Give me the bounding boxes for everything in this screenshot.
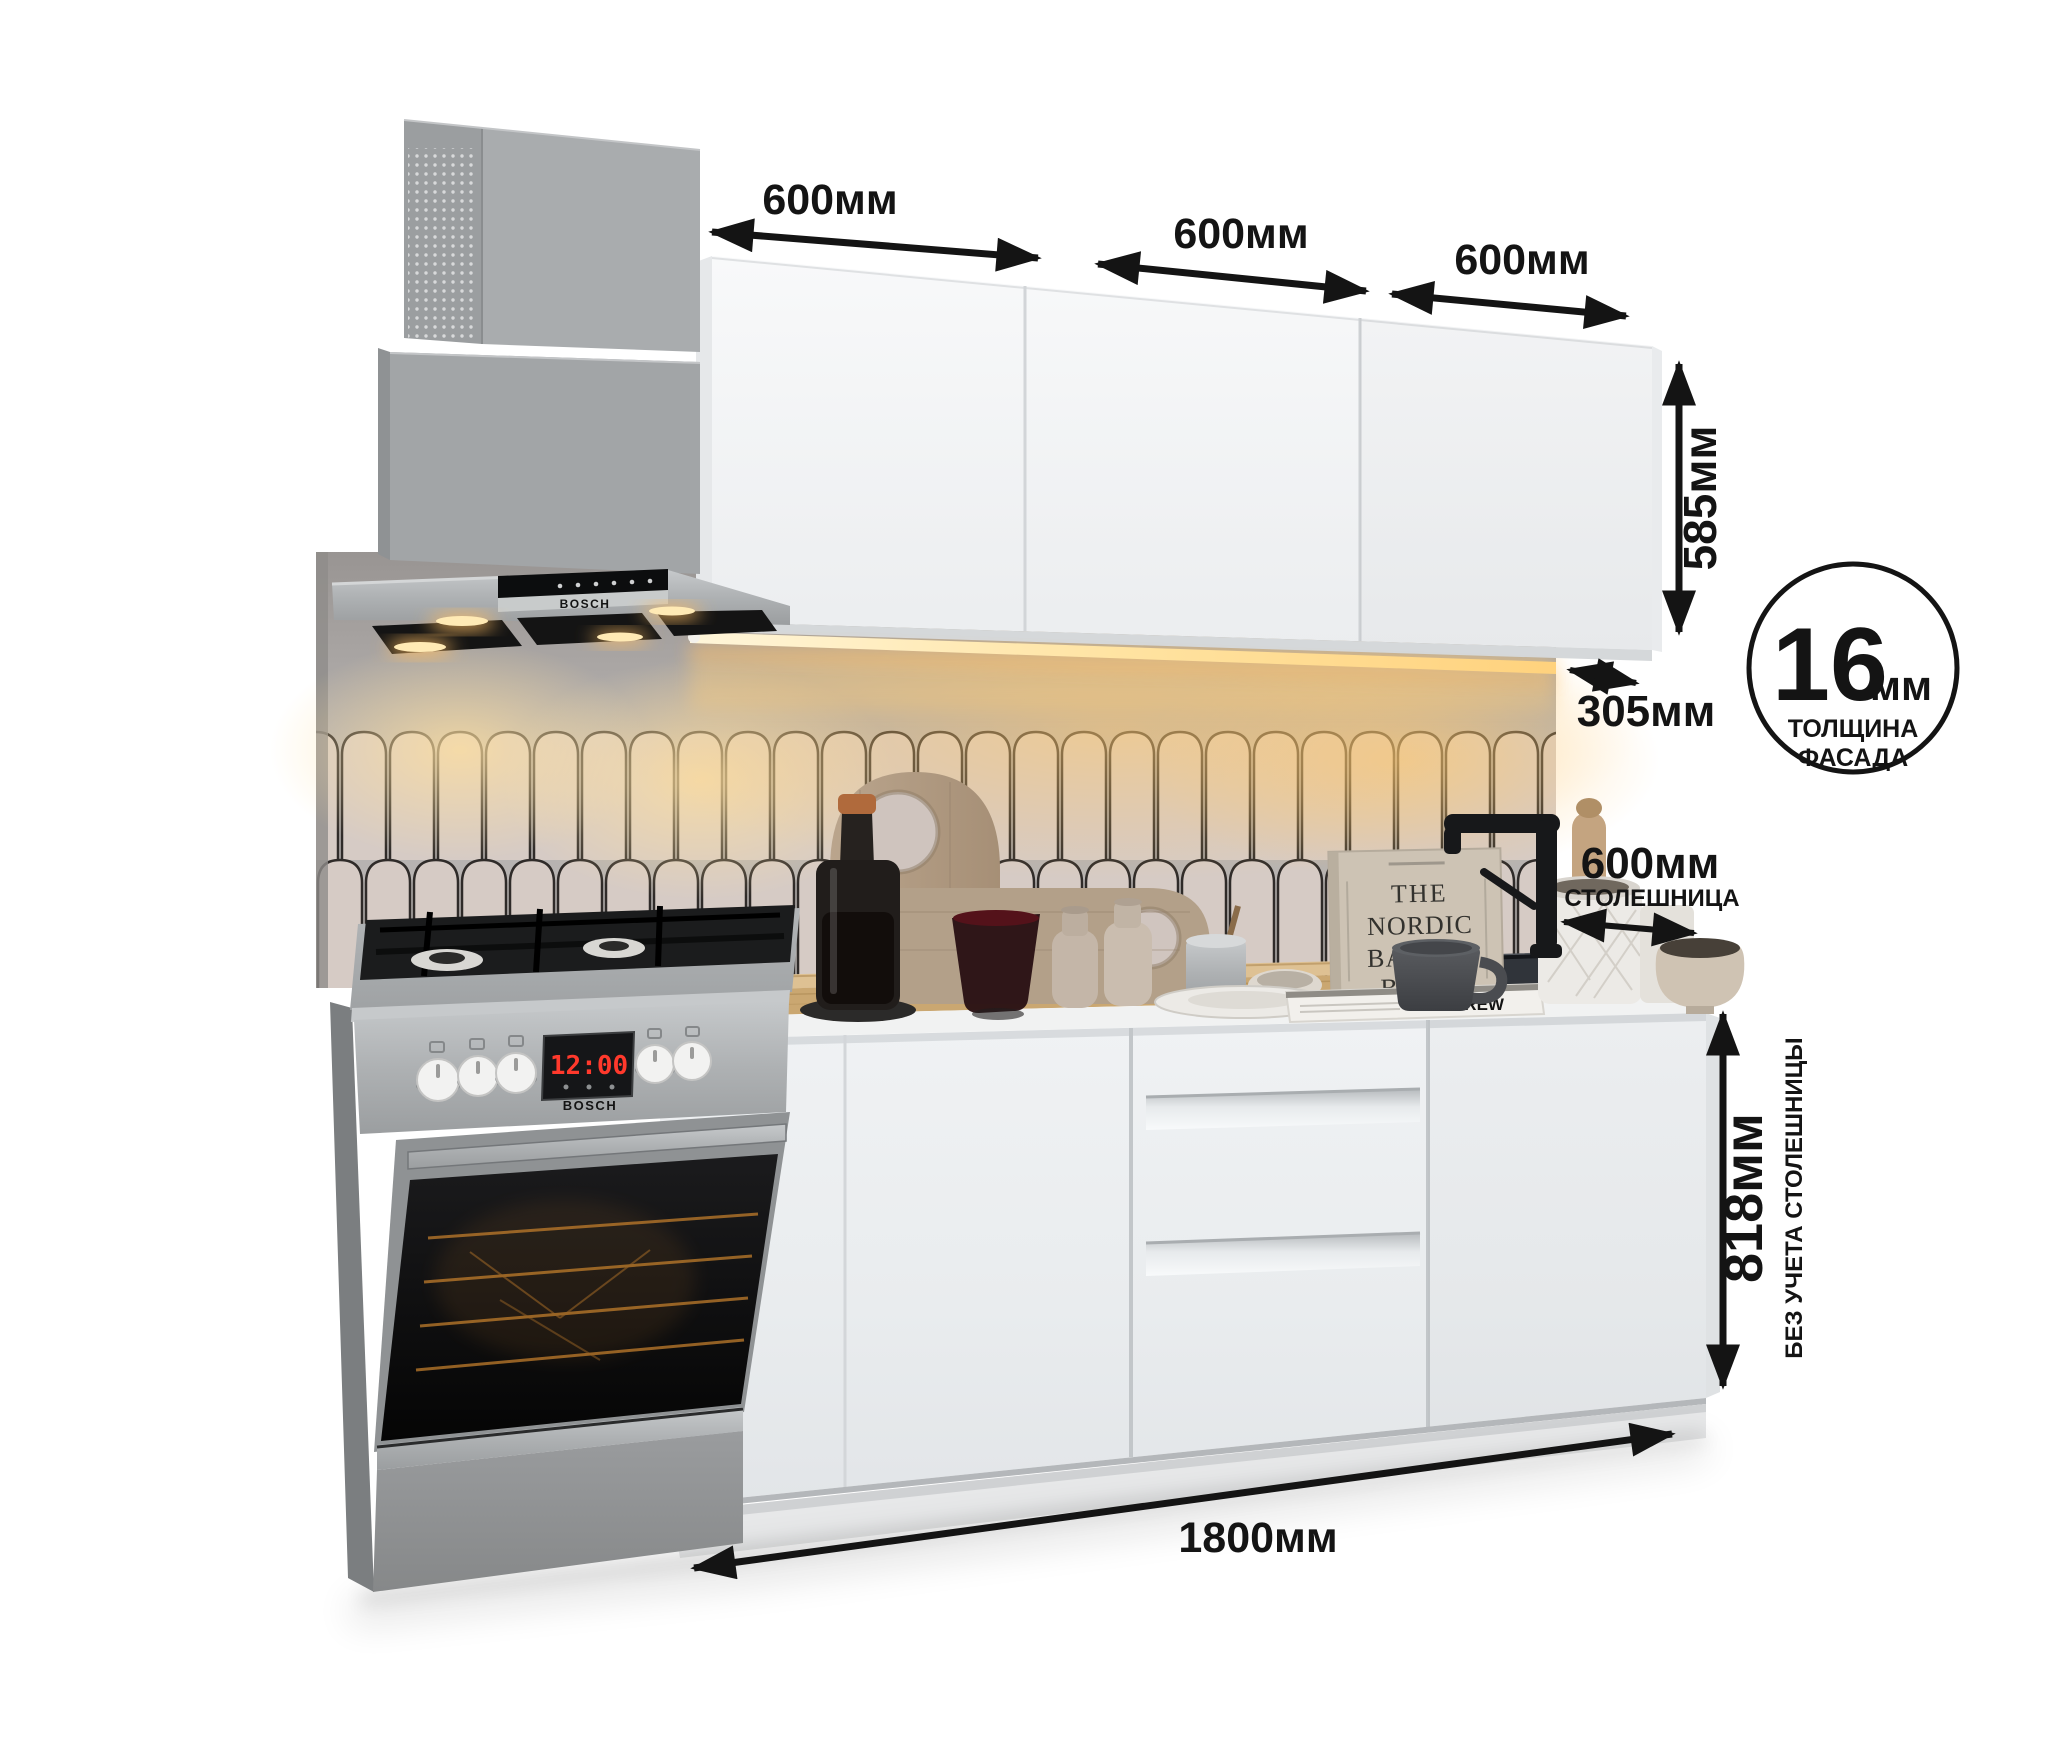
facade-thickness-badge: 16 мм ТОЛЩИНА ФАСАДА (1749, 564, 1957, 772)
stove-knob (635, 1045, 675, 1083)
dim-top-width-2: 600мм (1098, 210, 1366, 291)
dim-base-height-818: 818мм БЕЗ УЧЕТА СТОЛЕШНИЦЫ (1714, 1014, 1808, 1386)
badge-unit: мм (1870, 662, 1932, 709)
dim-label-1800: 1800мм (1178, 1514, 1337, 1562)
stove: 12:00 BOSCH (330, 905, 800, 1592)
dim-label-600-1: 600мм (762, 176, 897, 224)
bottle-copper-cap (838, 794, 876, 814)
stove-knob (673, 1042, 711, 1080)
faucet-base (1530, 944, 1562, 958)
dim-cabinet-height-585: 585мм (1674, 364, 1726, 632)
stove-clock: 12:00 (550, 1051, 628, 1081)
dim-label-600-2: 600мм (1173, 210, 1308, 258)
dim-label-585: 585мм (1674, 426, 1726, 571)
stove-brand-label: BOSCH (563, 1098, 617, 1113)
wall-cabinet-right-side (1652, 346, 1662, 652)
badge-caption-2: ФАСАДА (1798, 744, 1908, 772)
dim-top-width-3: 600мм (1392, 236, 1626, 316)
wall-cabinets (696, 256, 1662, 661)
stove-knob (457, 1056, 499, 1096)
oven-door (374, 1112, 790, 1452)
hood-chimney-upper (404, 120, 700, 352)
product-dimension-image: 12:00 BOSCH (0, 0, 2048, 1757)
hood-vent-grid (408, 148, 476, 340)
hood-chimney-lower (378, 348, 700, 574)
dim-label-600-3: 600мм (1454, 236, 1589, 284)
stove-knob (495, 1053, 537, 1093)
dim-label-600-countertop: 600мм (1581, 839, 1720, 888)
book-title-line: NORDIC (1367, 910, 1473, 941)
stove-display: 12:00 (542, 1032, 634, 1100)
hood-brand-label: BOSCH (560, 597, 611, 611)
faucet-column (1536, 820, 1557, 950)
stove-knob (416, 1059, 460, 1101)
wine-glass (952, 910, 1040, 1020)
dim-label-818: 818мм (1714, 1113, 1774, 1283)
kitchen-scene: 12:00 BOSCH (0, 0, 2048, 1757)
dim-top-width-1: 600мм (712, 176, 1038, 258)
dim-caption-countertop: СТОЛЕШНИЦА (1564, 885, 1739, 912)
dim-caption-818: БЕЗ УЧЕТА СТОЛЕШНИЦЫ (1781, 1037, 1808, 1358)
faucet-spout (1444, 828, 1461, 854)
book-title-line: THE (1391, 878, 1448, 908)
badge-caption-1: ТОЛЩИНА (1788, 715, 1919, 743)
dim-label-305: 305мм (1577, 687, 1716, 736)
